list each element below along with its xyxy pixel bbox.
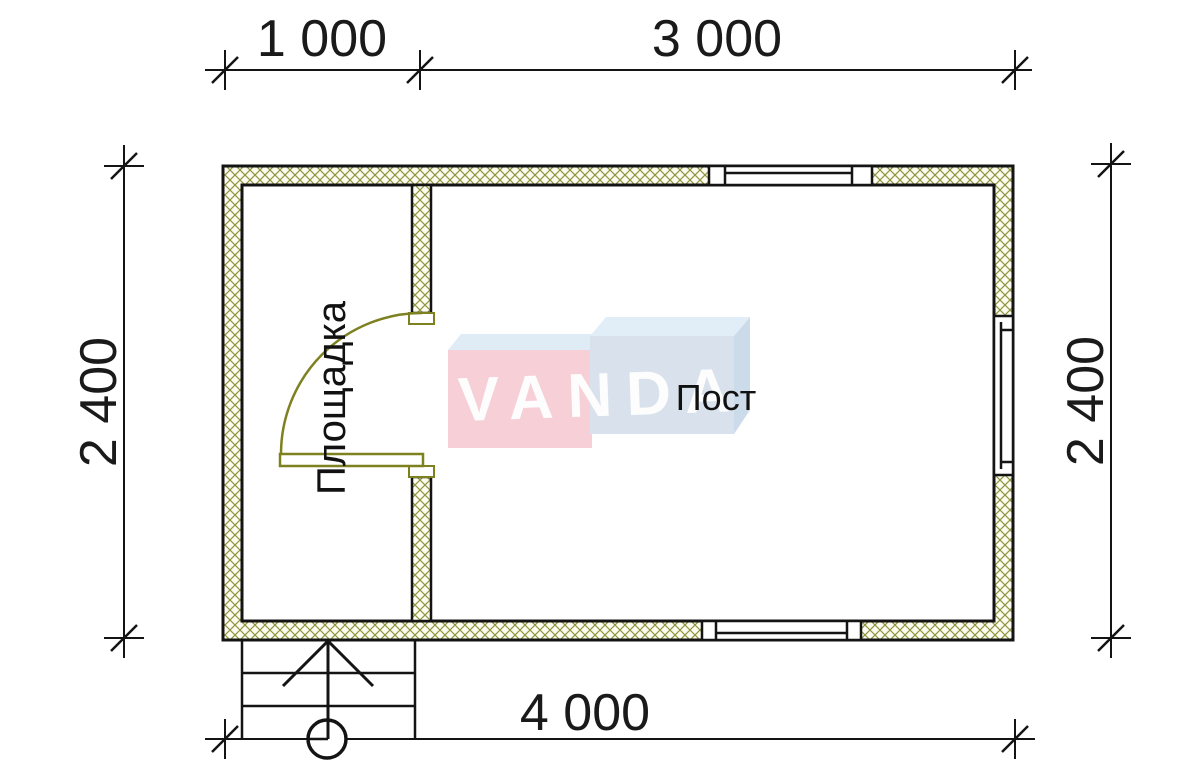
dim-label-right-2400: 2 400 [1057,336,1115,466]
dim-label-3000: 3 000 [652,10,782,68]
window-right [994,316,1013,475]
window-top-frame [709,166,872,185]
floor-plan-canvas: VANDA [0,0,1200,772]
interior-wall-upper [412,185,431,313]
window-bottom [702,621,861,640]
window-top [709,166,872,185]
logo-pink-box-top [448,334,603,350]
dim-label-4000: 4 000 [520,684,650,742]
logo-blue-box-top [590,317,750,336]
room-label-ploshchadka: Площадка [310,300,354,495]
dim-label-left-2400: 2 400 [70,337,128,467]
floor-plan-drawing: VANDA [0,0,1200,772]
door-jamb-top [409,313,434,324]
entry-point-marker [308,641,346,758]
window-bottom-frame [702,621,861,640]
room-label-post: Пост [676,377,756,418]
door-jamb-bottom [409,466,434,477]
interior-wall-lower [412,477,431,621]
window-right-frame [994,316,1013,475]
dim-label-1000: 1 000 [257,10,387,68]
